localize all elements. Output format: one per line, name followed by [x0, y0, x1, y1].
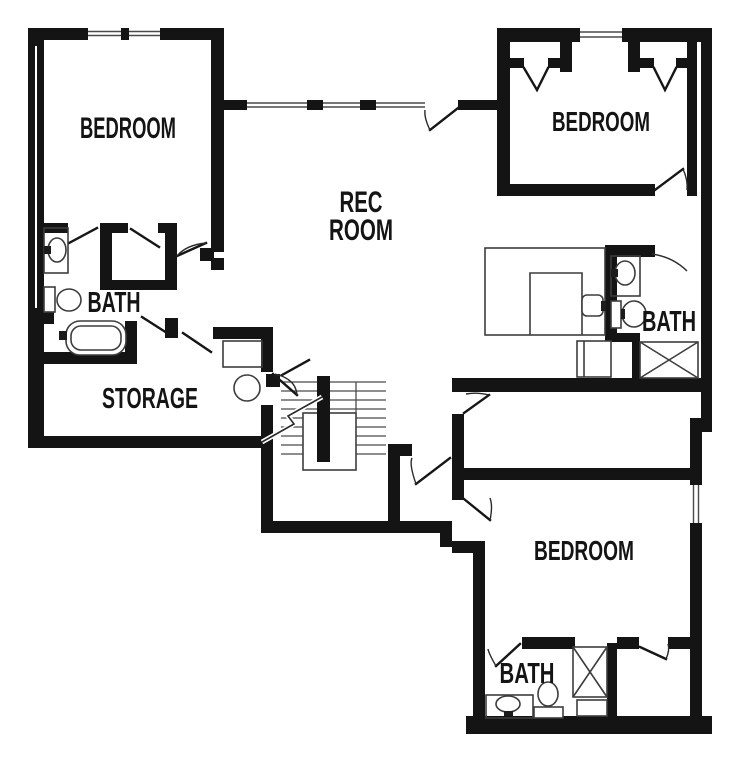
wall-segment — [452, 378, 712, 392]
window-rec-room — [247, 100, 425, 110]
faucet-icon — [44, 246, 51, 254]
floor-plan: BEDROOM REC ROOM BEDROOM BATH STORAGE BA… — [0, 0, 741, 768]
door-arc — [490, 498, 492, 520]
label-bedroom-bottom: BEDROOM — [534, 535, 634, 566]
wall-segment — [497, 28, 510, 196]
wall-segment — [452, 480, 464, 500]
door-arc — [683, 169, 687, 190]
floor-plan-page: BEDROOM REC ROOM BEDROOM BATH STORAGE BA… — [0, 0, 741, 768]
door-stairs-top — [282, 360, 309, 375]
faucet-icon — [611, 269, 618, 277]
wall-segment — [452, 414, 464, 468]
bar-sink-icon — [582, 295, 603, 316]
wall-segment — [100, 223, 128, 233]
wall-segment — [605, 245, 655, 257]
toilet-tank-icon — [44, 287, 55, 312]
wall-segment — [165, 318, 178, 338]
cabinet-icon — [577, 700, 607, 716]
staircase — [262, 376, 386, 470]
shower-icon — [573, 647, 607, 697]
wall-segment — [668, 637, 690, 649]
toilet-tank-icon — [611, 301, 621, 328]
door-bath-left — [69, 228, 97, 243]
faucet-icon — [504, 711, 513, 716]
wall-segment — [211, 28, 224, 252]
wall-segment — [158, 223, 177, 233]
label-bedroom-top-right: BEDROOM — [552, 106, 650, 137]
wet-bar-counter-inner — [530, 273, 582, 335]
door-arc — [411, 458, 416, 484]
door-arc — [466, 393, 489, 395]
door-bath-storage-1 — [142, 317, 167, 333]
wall-segment — [640, 58, 654, 68]
wall-segment — [522, 637, 575, 649]
label-storage: STORAGE — [102, 383, 198, 415]
wall-segment — [676, 58, 687, 68]
door-arc — [425, 110, 430, 130]
window-bedroom-bottom — [690, 485, 702, 523]
wall-segment — [701, 28, 712, 432]
door-closet-bottom — [640, 647, 666, 659]
wall-segment — [690, 523, 702, 734]
wall-segment — [607, 643, 617, 718]
door-rec-room-top — [430, 108, 458, 130]
wall-segment — [628, 42, 640, 72]
wall-segment — [211, 100, 247, 110]
door-arc — [488, 649, 496, 666]
door-bedroom-top-right — [655, 169, 683, 190]
wall-segment — [687, 28, 697, 196]
wall-segment — [622, 28, 712, 42]
wet-bar-counter — [485, 248, 605, 335]
label-bath-right: BATH — [642, 306, 696, 338]
wall-segment — [560, 42, 572, 72]
water-heater-icon — [234, 375, 260, 401]
window-bedroom-top-left — [88, 28, 160, 40]
wet-bar — [485, 248, 611, 377]
wall-segment — [28, 28, 88, 40]
wall-segment — [165, 223, 177, 290]
door-closet-left — [131, 229, 159, 247]
wall-segment — [266, 374, 280, 387]
wall-segment — [213, 327, 273, 339]
wall-segment — [388, 444, 400, 524]
door-closet2-left — [524, 68, 548, 90]
mini-fridge-icon — [577, 341, 611, 377]
toilet-tank-icon — [534, 707, 563, 718]
wall-segment — [452, 468, 690, 480]
utility-box-icon — [223, 341, 262, 367]
wall-segment — [100, 223, 112, 290]
toilet-icon — [57, 289, 81, 311]
window-bedroom-top-right — [580, 28, 622, 42]
wall-segment — [261, 405, 273, 533]
label-bedroom-top-left: BEDROOM — [80, 112, 176, 145]
door-bath-storage-2 — [183, 333, 211, 352]
wall-segment — [28, 436, 273, 448]
door-vestibule — [464, 395, 489, 413]
storage-fixtures — [223, 341, 262, 401]
shower-icon — [640, 342, 698, 378]
wall-segment — [632, 342, 640, 378]
door-bedroom-bottom — [464, 499, 490, 520]
wall-segment — [497, 184, 655, 196]
wall-segment — [261, 521, 452, 533]
stair-divider-wall — [317, 376, 330, 462]
tub-faucet-icon — [59, 331, 67, 340]
wall-segment — [510, 58, 524, 68]
wall-segment — [200, 248, 214, 261]
wall-cavity-line — [35, 46, 37, 308]
door-closet2-right — [654, 68, 676, 90]
wall-segment — [548, 58, 560, 68]
door-hallway — [416, 458, 450, 484]
wall-segment — [690, 418, 702, 485]
label-bath-left: BATH — [88, 287, 141, 319]
bar-faucet-icon — [601, 301, 606, 311]
door-bath-right — [652, 254, 687, 271]
wall-segment — [617, 637, 639, 649]
wall-segment — [473, 541, 485, 728]
label-bath-bottom: BATH — [500, 658, 555, 690]
door-arc — [666, 644, 669, 659]
label-rec-room-line2: ROOM — [329, 214, 393, 247]
sink-icon — [496, 696, 520, 712]
